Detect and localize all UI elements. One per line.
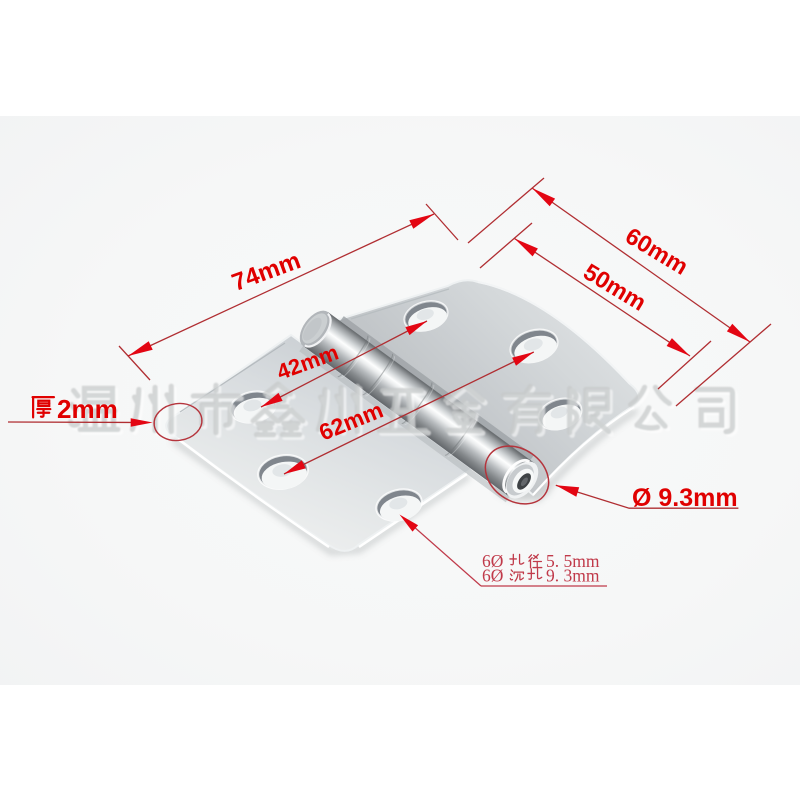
svg-text:9. 3mm: 9. 3mm [546,566,600,586]
svg-text:6Ø: 6Ø [482,566,503,586]
svg-text:Ø 9.3mm: Ø 9.3mm [632,484,738,512]
svg-text:2mm: 2mm [57,394,118,424]
